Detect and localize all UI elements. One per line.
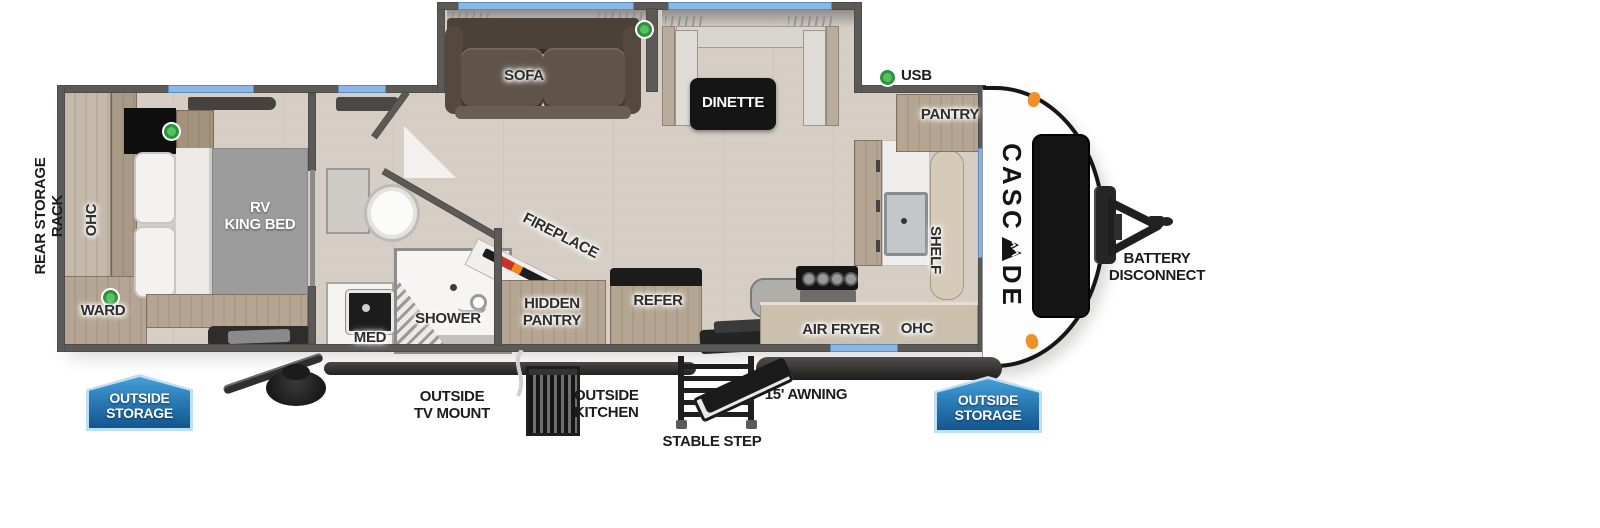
hitch-ball-socket: [1160, 217, 1173, 226]
shower-drain: [450, 284, 457, 291]
pantry-label: PANTRY: [905, 107, 995, 123]
bedroom-ohc-label: OHC: [84, 170, 102, 270]
bed-pillow: [134, 152, 176, 224]
awning-label: 15' AWNING: [746, 387, 866, 405]
slideout-wall-left: [437, 2, 445, 93]
med-sink: [346, 290, 394, 334]
step-foot: [676, 420, 687, 429]
bathroom-window: [338, 85, 386, 93]
outside-storage-badge-inner: OUTSIDE STORAGE: [937, 379, 1039, 430]
rear-storage-rack-label: REAR STORAGE RACK: [33, 144, 51, 288]
awning-rail-front: [756, 357, 1002, 380]
sink-drain: [901, 218, 907, 224]
usb-label: USB: [901, 68, 945, 84]
headboard-shelf: [188, 97, 276, 110]
brand-logo: CASC DE: [996, 111, 1028, 341]
bedroom-divider-lower: [308, 286, 316, 344]
kitchen-ohc-label: OHC: [877, 321, 957, 337]
cabinet-handle: [876, 200, 880, 212]
battery-disconnect-label: BATTERY DISCONNECT: [1095, 251, 1219, 285]
refer-label: REFER: [613, 293, 703, 309]
med-faucet: [362, 304, 370, 312]
stable-step-label: STABLE STEP: [642, 434, 782, 452]
step-foot: [746, 420, 757, 429]
stove-burner: [802, 272, 816, 286]
kitchen-window: [830, 344, 898, 352]
kitchen-sink: [884, 192, 928, 256]
usb-indicator: [880, 70, 895, 85]
brand-text-suffix: DE: [997, 265, 1028, 309]
floorplan-stage: CASC DE OUTSIDE STORAGE OUTSIDE STOR: [0, 0, 1600, 528]
front-window: [1032, 134, 1090, 318]
stove-burner: [844, 272, 858, 286]
hitch-frame: [1108, 196, 1164, 258]
cabinet-handle: [876, 160, 880, 172]
shower-label: SHOWER: [400, 311, 496, 327]
slideout-divider: [646, 8, 658, 92]
ward-label: WARD: [63, 303, 143, 321]
toilet-platform: [326, 168, 370, 234]
step-rung: [682, 364, 750, 369]
outside-storage-badge-rear: OUTSIDE STORAGE: [86, 374, 193, 431]
brand-text-prefix: CASC: [997, 143, 1028, 233]
air-fryer-label: AIR FRYER: [791, 322, 891, 338]
outside-storage-label: OUTSIDE STORAGE: [955, 393, 1022, 424]
med-label: MED: [338, 330, 402, 346]
slideout-window: [668, 2, 832, 10]
bed-label: RV KING BED: [205, 200, 315, 234]
sofa-label: SOFA: [474, 68, 574, 84]
cabinet-handle: [876, 240, 880, 252]
dinette-label: DINETTE: [683, 95, 783, 111]
toilet: [364, 184, 420, 242]
bedroom-window: [168, 85, 254, 93]
bed-pillow: [134, 226, 176, 298]
shower-faucet-icon: [470, 294, 487, 311]
refrigerator-top: [610, 268, 702, 286]
outside-storage-badge-front: OUTSIDE STORAGE: [934, 376, 1042, 433]
dinette-bench-back: [662, 26, 675, 126]
desk-tablet: [228, 329, 290, 344]
usb-indicator: [637, 22, 652, 37]
outside-storage-label: OUTSIDE STORAGE: [106, 391, 173, 422]
hidden-pantry-label: HIDDEN PANTRY: [499, 296, 605, 332]
sofa-front-skirt: [455, 106, 631, 119]
sofa-arm-right: [623, 26, 641, 114]
outside-kitchen-label: OUTSIDE KITCHEN: [556, 388, 676, 422]
stove-burner: [816, 272, 830, 286]
shelf-label: SHELF: [925, 200, 943, 300]
outside-storage-badge-inner: OUTSIDE STORAGE: [89, 377, 190, 428]
stove-burner: [830, 272, 844, 286]
bed-step: [146, 294, 308, 328]
wall-top-front: [854, 85, 986, 93]
outside-tv-mount-label: OUTSIDE TV MOUNT: [392, 389, 512, 423]
dinette-bench-back: [826, 26, 839, 126]
slideout-wall-right: [854, 2, 862, 93]
dinette-bench-seat: [803, 30, 826, 126]
bedroom-divider-upper: [308, 93, 316, 171]
slideout-window: [458, 2, 634, 10]
usb-indicator: [164, 124, 179, 139]
tv-mount-arm: [282, 364, 310, 380]
mountain-icon: [1001, 236, 1023, 262]
